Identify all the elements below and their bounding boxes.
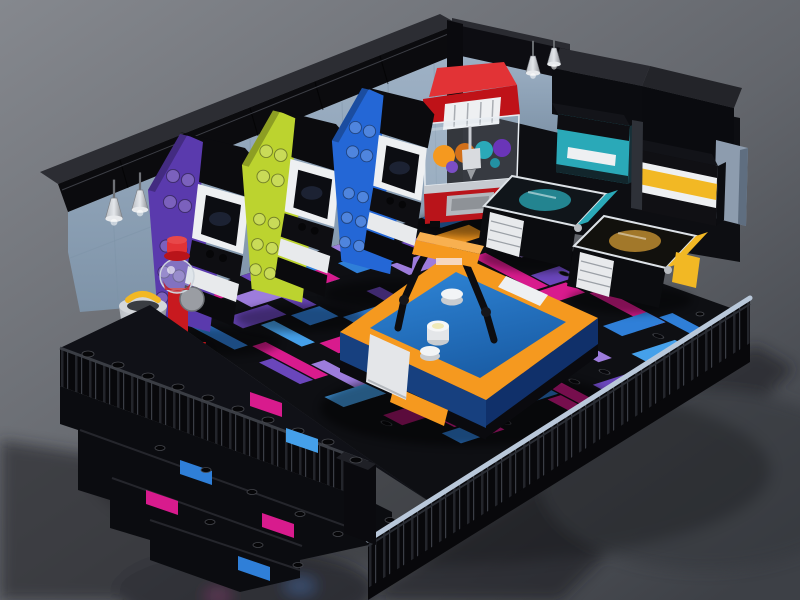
claw-grabber: [462, 148, 481, 170]
photo-canvas: [0, 0, 800, 600]
lego-arcade-photo: [0, 0, 800, 600]
